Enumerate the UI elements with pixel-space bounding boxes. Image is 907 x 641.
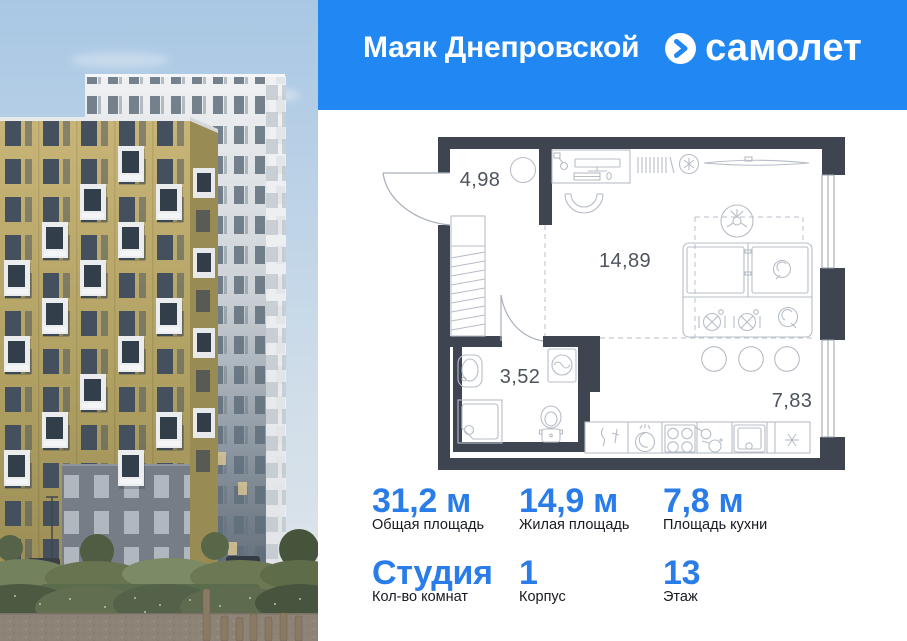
page-title: Маяк Днепровской [363,31,639,65]
stat-value: 13 [663,557,700,589]
brand-logo: самолет [665,29,862,67]
living-room-area-label: 14,89 [599,250,651,272]
stat-value: 14,9 м [519,485,629,517]
bathroom-area-label: 3,52 [500,366,541,388]
stat-value: Студия [372,557,493,589]
wardrobe [451,216,485,336]
stat-label: Площадь кухни [663,518,767,534]
apartment-stats: 31,2 м Общая площадь 14,9 м Жилая площад… [318,472,907,641]
stat-living-area: 14,9 м Жилая площадь [519,485,629,534]
window-right-bottom [822,340,834,437]
stat-value: 7,8 м [663,485,767,517]
place-setting [699,310,725,331]
console-shelf [704,157,809,165]
building-photo [0,0,318,641]
listing-card: Маяк Днепровской самолет [0,0,907,641]
stat-label: Этаж [663,590,700,606]
zone-boundaries [545,217,812,338]
bathroom-door [501,295,543,341]
hallway-area-label: 4,98 [460,169,501,191]
toilet [540,406,563,442]
floor-plan: 4,98 14,89 3,52 7,83 [318,110,907,472]
tan-building [0,117,218,588]
info-panel: Маяк Днепровской самолет [318,0,907,641]
ceiling-lamp-icon [511,158,536,183]
stat-building: 1 Корпус [519,557,566,606]
stat-value: 1 [519,557,566,589]
shelf-books [638,157,674,173]
side-table [721,205,753,237]
desk [552,150,630,183]
chair-icon [779,308,798,329]
stools [702,347,800,372]
samolet-logo-icon [665,33,696,64]
desk-chair [565,194,603,213]
kitchen-counter [585,422,810,453]
stat-label: Общая площадь [372,518,484,534]
chair-icon [774,261,791,280]
stat-label: Жилая площадь [519,518,629,534]
stat-label: Корпус [519,590,566,606]
window-right-top [822,175,834,268]
washing-machine [548,349,576,382]
kitchen-area-label: 7,83 [772,390,813,412]
brand-wordmark: самолет [705,29,862,67]
entrance-door [383,173,450,225]
stat-rooms: Студия Кол-во комнат [372,557,493,606]
plant-icon [680,155,699,174]
stat-label: Кол-во комнат [372,590,493,606]
stat-floor: 13 Этаж [663,557,700,606]
building-photo-art [0,0,318,641]
stat-value: 31,2 м [372,485,484,517]
place-setting [734,310,760,331]
stat-kitchen-area: 7,8 м Площадь кухни [663,485,767,534]
shower [458,400,502,443]
header-bar: Маяк Днепровской самолет [318,0,907,110]
stat-total-area: 31,2 м Общая площадь [372,485,484,534]
